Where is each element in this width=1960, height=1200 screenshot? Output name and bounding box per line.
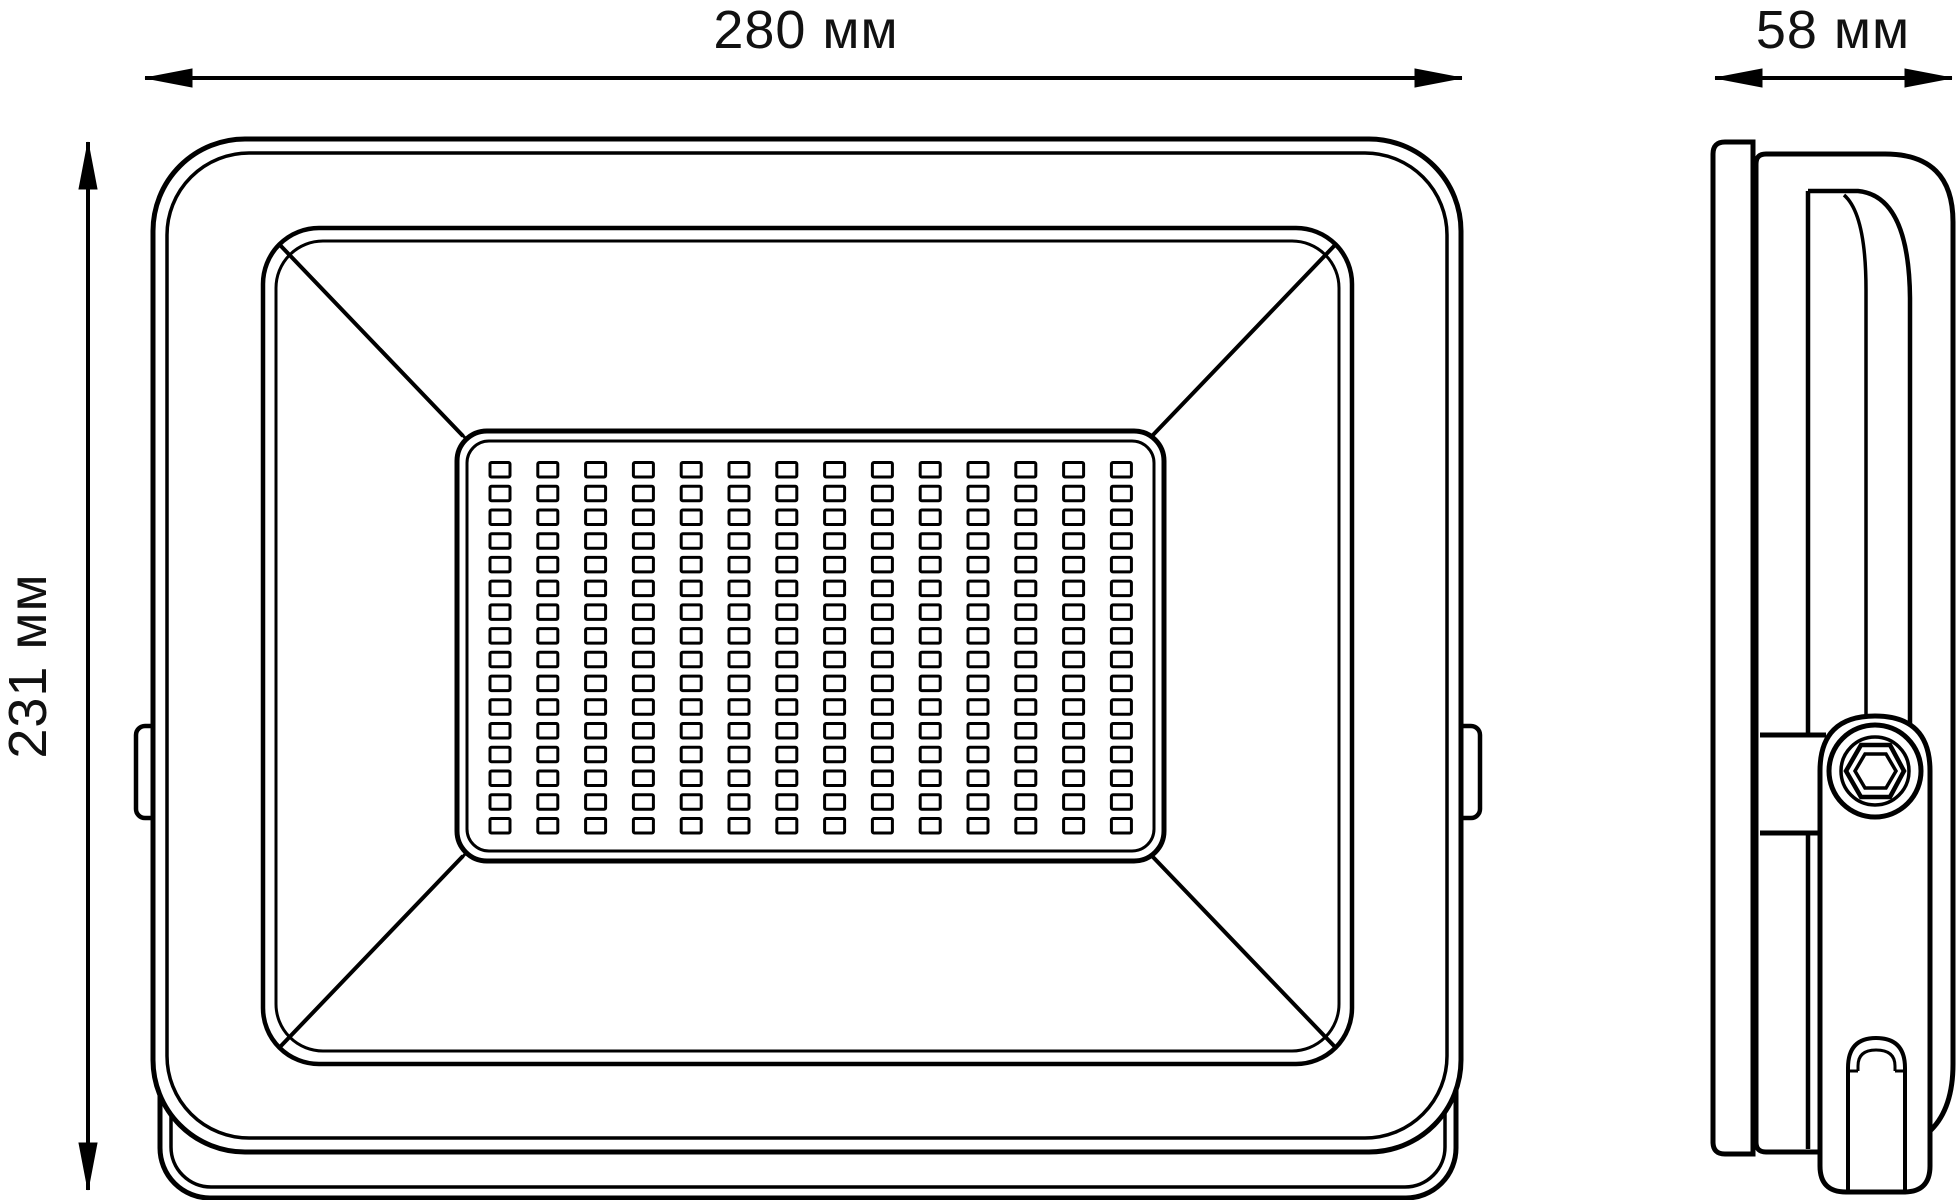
arrowhead-left-icon xyxy=(1715,69,1762,87)
led-chip xyxy=(1016,724,1036,739)
led-chip xyxy=(633,771,653,786)
led-chip xyxy=(633,510,653,525)
led-chip xyxy=(490,581,510,596)
led-chip xyxy=(729,581,749,596)
led-chip xyxy=(586,605,606,620)
led-chip xyxy=(777,700,797,715)
led-chip xyxy=(681,629,701,644)
led-chip xyxy=(1111,629,1131,644)
depth-dimension: 58 мм xyxy=(1715,0,1952,87)
led-chip xyxy=(1064,534,1084,549)
led-chip xyxy=(538,700,558,715)
led-chip xyxy=(825,510,845,525)
led-chip xyxy=(1064,676,1084,691)
led-chip xyxy=(681,819,701,834)
led-chip xyxy=(729,652,749,667)
led-chip xyxy=(633,534,653,549)
led-chip xyxy=(825,629,845,644)
led-chip xyxy=(633,652,653,667)
led-chip xyxy=(777,534,797,549)
led-chip xyxy=(1111,700,1131,715)
led-chip xyxy=(490,557,510,572)
led-chip xyxy=(872,700,892,715)
led-chip xyxy=(968,534,988,549)
led-chip xyxy=(872,486,892,501)
led-chip xyxy=(920,486,940,501)
led-chip xyxy=(1064,629,1084,644)
led-chip xyxy=(681,771,701,786)
depth-dimension-label: 58 мм xyxy=(1756,0,1910,60)
led-chip xyxy=(586,510,606,525)
led-chip xyxy=(1111,819,1131,834)
led-chip xyxy=(920,676,940,691)
led-chip xyxy=(633,795,653,810)
led-chip xyxy=(1016,534,1036,549)
led-chip xyxy=(729,557,749,572)
led-chip xyxy=(1016,676,1036,691)
led-chip xyxy=(777,652,797,667)
led-chip xyxy=(872,581,892,596)
led-chip xyxy=(490,819,510,834)
led-chip xyxy=(968,700,988,715)
led-chip xyxy=(872,819,892,834)
led-chip xyxy=(825,581,845,596)
led-chip xyxy=(825,676,845,691)
led-chip xyxy=(538,463,558,478)
led-chip xyxy=(681,534,701,549)
led-chip xyxy=(1064,724,1084,739)
led-chip xyxy=(586,534,606,549)
led-chip xyxy=(777,795,797,810)
led-chip xyxy=(681,795,701,810)
led-chip xyxy=(633,486,653,501)
led-chip xyxy=(1111,771,1131,786)
arrowhead-up-icon xyxy=(79,142,97,189)
led-chip xyxy=(825,819,845,834)
led-chip xyxy=(490,676,510,691)
led-chip xyxy=(633,747,653,762)
led-chip xyxy=(681,557,701,572)
led-chip xyxy=(1111,581,1131,596)
led-chip xyxy=(1016,510,1036,525)
led-chip xyxy=(968,581,988,596)
led-chip xyxy=(538,557,558,572)
led-chip xyxy=(1111,486,1131,501)
led-chip xyxy=(586,629,606,644)
led-chip xyxy=(920,463,940,478)
led-chip xyxy=(681,724,701,739)
led-chip xyxy=(920,700,940,715)
led-chip xyxy=(825,724,845,739)
led-chip xyxy=(490,629,510,644)
led-chip xyxy=(729,795,749,810)
led-chip xyxy=(968,629,988,644)
led-chip xyxy=(729,747,749,762)
led-chip xyxy=(538,771,558,786)
led-chip xyxy=(968,771,988,786)
led-chip xyxy=(538,724,558,739)
led-chip xyxy=(538,629,558,644)
led-chip xyxy=(1016,747,1036,762)
technical-drawing-page: 280 мм 58 мм 231 мм xyxy=(0,0,1960,1200)
led-chip xyxy=(1064,581,1084,596)
led-chip xyxy=(538,486,558,501)
led-chip xyxy=(1064,795,1084,810)
led-chip xyxy=(1111,724,1131,739)
led-chip xyxy=(538,747,558,762)
arrowhead-down-icon xyxy=(79,1143,97,1190)
led-chip xyxy=(1064,652,1084,667)
led-chip xyxy=(633,581,653,596)
led-chip xyxy=(633,557,653,572)
led-chip xyxy=(633,676,653,691)
led-chip xyxy=(777,557,797,572)
led-chip xyxy=(920,795,940,810)
led-chip xyxy=(1064,486,1084,501)
led-chip xyxy=(729,724,749,739)
led-chip xyxy=(681,652,701,667)
led-chip xyxy=(681,676,701,691)
led-chip xyxy=(538,819,558,834)
led-chip xyxy=(825,747,845,762)
led-chip xyxy=(538,534,558,549)
led-chip xyxy=(968,486,988,501)
led-chip xyxy=(729,676,749,691)
led-chip xyxy=(490,534,510,549)
led-chip xyxy=(729,510,749,525)
led-chip xyxy=(490,700,510,715)
led-chip xyxy=(633,724,653,739)
led-chip xyxy=(729,605,749,620)
led-chip xyxy=(777,486,797,501)
led-chip xyxy=(1111,795,1131,810)
led-chip xyxy=(729,534,749,549)
led-chip xyxy=(538,510,558,525)
led-chip xyxy=(1016,700,1036,715)
led-chip xyxy=(1064,819,1084,834)
led-chip xyxy=(777,747,797,762)
led-chip xyxy=(729,629,749,644)
led-chip xyxy=(968,747,988,762)
led-chip xyxy=(777,629,797,644)
led-chip xyxy=(825,534,845,549)
led-chip xyxy=(825,486,845,501)
led-chip xyxy=(920,605,940,620)
led-chip xyxy=(1111,676,1131,691)
led-chip xyxy=(681,747,701,762)
front-view xyxy=(136,139,1480,1198)
led-chip xyxy=(1064,557,1084,572)
led-chip xyxy=(920,510,940,525)
led-chip xyxy=(586,463,606,478)
led-chip xyxy=(1016,486,1036,501)
led-chip xyxy=(825,771,845,786)
led-chip xyxy=(681,605,701,620)
led-chip xyxy=(920,724,940,739)
led-chip xyxy=(920,747,940,762)
led-chip xyxy=(586,486,606,501)
led-chip xyxy=(681,463,701,478)
width-dimension: 280 мм xyxy=(145,0,1462,87)
led-chip xyxy=(633,463,653,478)
led-chip xyxy=(968,463,988,478)
led-chip xyxy=(968,652,988,667)
led-chip xyxy=(872,724,892,739)
side-bracket-bar xyxy=(1760,733,1826,833)
led-chip xyxy=(920,629,940,644)
led-chip xyxy=(920,534,940,549)
led-chip xyxy=(920,557,940,572)
led-chip xyxy=(872,652,892,667)
led-chip xyxy=(825,795,845,810)
led-chip xyxy=(968,795,988,810)
led-chip xyxy=(538,676,558,691)
led-chip xyxy=(825,700,845,715)
led-chip xyxy=(777,463,797,478)
led-chip xyxy=(920,652,940,667)
led-chip xyxy=(490,747,510,762)
led-chip xyxy=(825,652,845,667)
led-chip xyxy=(968,819,988,834)
led-chip xyxy=(872,463,892,478)
arrowhead-right-icon xyxy=(1415,69,1462,87)
led-panel xyxy=(457,431,1164,861)
led-chip xyxy=(1064,747,1084,762)
led-chip xyxy=(1016,581,1036,596)
led-chip xyxy=(777,771,797,786)
led-chip xyxy=(1111,747,1131,762)
led-chip xyxy=(490,724,510,739)
led-chip xyxy=(777,724,797,739)
arrowhead-left-icon xyxy=(145,69,192,87)
led-chip xyxy=(968,557,988,572)
led-chip xyxy=(586,747,606,762)
led-chip xyxy=(681,486,701,501)
side-view xyxy=(1713,142,1953,1192)
led-chip xyxy=(538,581,558,596)
led-chip xyxy=(490,795,510,810)
led-chip xyxy=(777,676,797,691)
led-chip xyxy=(1111,605,1131,620)
led-chip xyxy=(586,700,606,715)
led-chip xyxy=(729,819,749,834)
led-chip xyxy=(729,771,749,786)
led-chip xyxy=(586,771,606,786)
led-chip xyxy=(633,629,653,644)
led-chip xyxy=(586,724,606,739)
led-chip xyxy=(1016,652,1036,667)
led-chip xyxy=(681,700,701,715)
led-chip xyxy=(872,676,892,691)
led-chip xyxy=(872,795,892,810)
led-chip xyxy=(1016,771,1036,786)
led-chip xyxy=(729,700,749,715)
led-chip xyxy=(586,652,606,667)
led-chip xyxy=(1016,819,1036,834)
led-chip xyxy=(538,652,558,667)
led-chip xyxy=(920,771,940,786)
led-chip xyxy=(490,605,510,620)
led-chip xyxy=(872,747,892,762)
led-chip xyxy=(1064,771,1084,786)
led-chip xyxy=(538,795,558,810)
led-chip xyxy=(490,510,510,525)
led-chip xyxy=(1111,463,1131,478)
led-chip xyxy=(825,463,845,478)
led-chip xyxy=(968,724,988,739)
led-chip xyxy=(490,652,510,667)
led-chip xyxy=(633,605,653,620)
led-chip xyxy=(777,581,797,596)
led-chip xyxy=(729,486,749,501)
led-chip xyxy=(1064,463,1084,478)
arrowhead-right-icon xyxy=(1905,69,1952,87)
led-chip xyxy=(968,510,988,525)
led-chip xyxy=(920,819,940,834)
led-chip xyxy=(1016,629,1036,644)
led-chip xyxy=(968,605,988,620)
led-chip xyxy=(968,676,988,691)
led-chip xyxy=(825,557,845,572)
led-chip xyxy=(920,581,940,596)
led-chip xyxy=(825,605,845,620)
led-chip xyxy=(1064,510,1084,525)
led-chip xyxy=(633,819,653,834)
led-chip xyxy=(586,557,606,572)
led-chip xyxy=(872,771,892,786)
led-chip xyxy=(1111,652,1131,667)
led-chip xyxy=(1111,534,1131,549)
led-chip xyxy=(586,676,606,691)
led-chip xyxy=(872,534,892,549)
led-chip xyxy=(1016,605,1036,620)
led-chip xyxy=(777,510,797,525)
floodlight-drawing: 280 мм 58 мм 231 мм xyxy=(0,0,1960,1200)
led-chip xyxy=(1016,463,1036,478)
led-chip xyxy=(1064,700,1084,715)
led-chip xyxy=(586,795,606,810)
led-chip xyxy=(729,463,749,478)
led-chip xyxy=(872,629,892,644)
led-chip xyxy=(586,819,606,834)
led-chip xyxy=(1111,557,1131,572)
height-dimension-label: 231 мм xyxy=(0,573,58,758)
led-chip xyxy=(872,605,892,620)
led-chip xyxy=(777,819,797,834)
led-chip xyxy=(1016,557,1036,572)
led-chip xyxy=(490,486,510,501)
led-chip xyxy=(1064,605,1084,620)
led-chip xyxy=(586,581,606,596)
led-chip xyxy=(1111,510,1131,525)
led-chip xyxy=(777,605,797,620)
led-chip xyxy=(538,605,558,620)
height-dimension: 231 мм xyxy=(0,142,97,1190)
width-dimension-label: 280 мм xyxy=(713,0,898,60)
led-chip xyxy=(633,700,653,715)
led-chip xyxy=(872,557,892,572)
led-chip xyxy=(681,581,701,596)
led-chip xyxy=(1016,795,1036,810)
led-chip xyxy=(490,771,510,786)
led-chip xyxy=(490,463,510,478)
led-chip xyxy=(681,510,701,525)
led-chip xyxy=(872,510,892,525)
side-back-fin xyxy=(1713,142,1753,1154)
